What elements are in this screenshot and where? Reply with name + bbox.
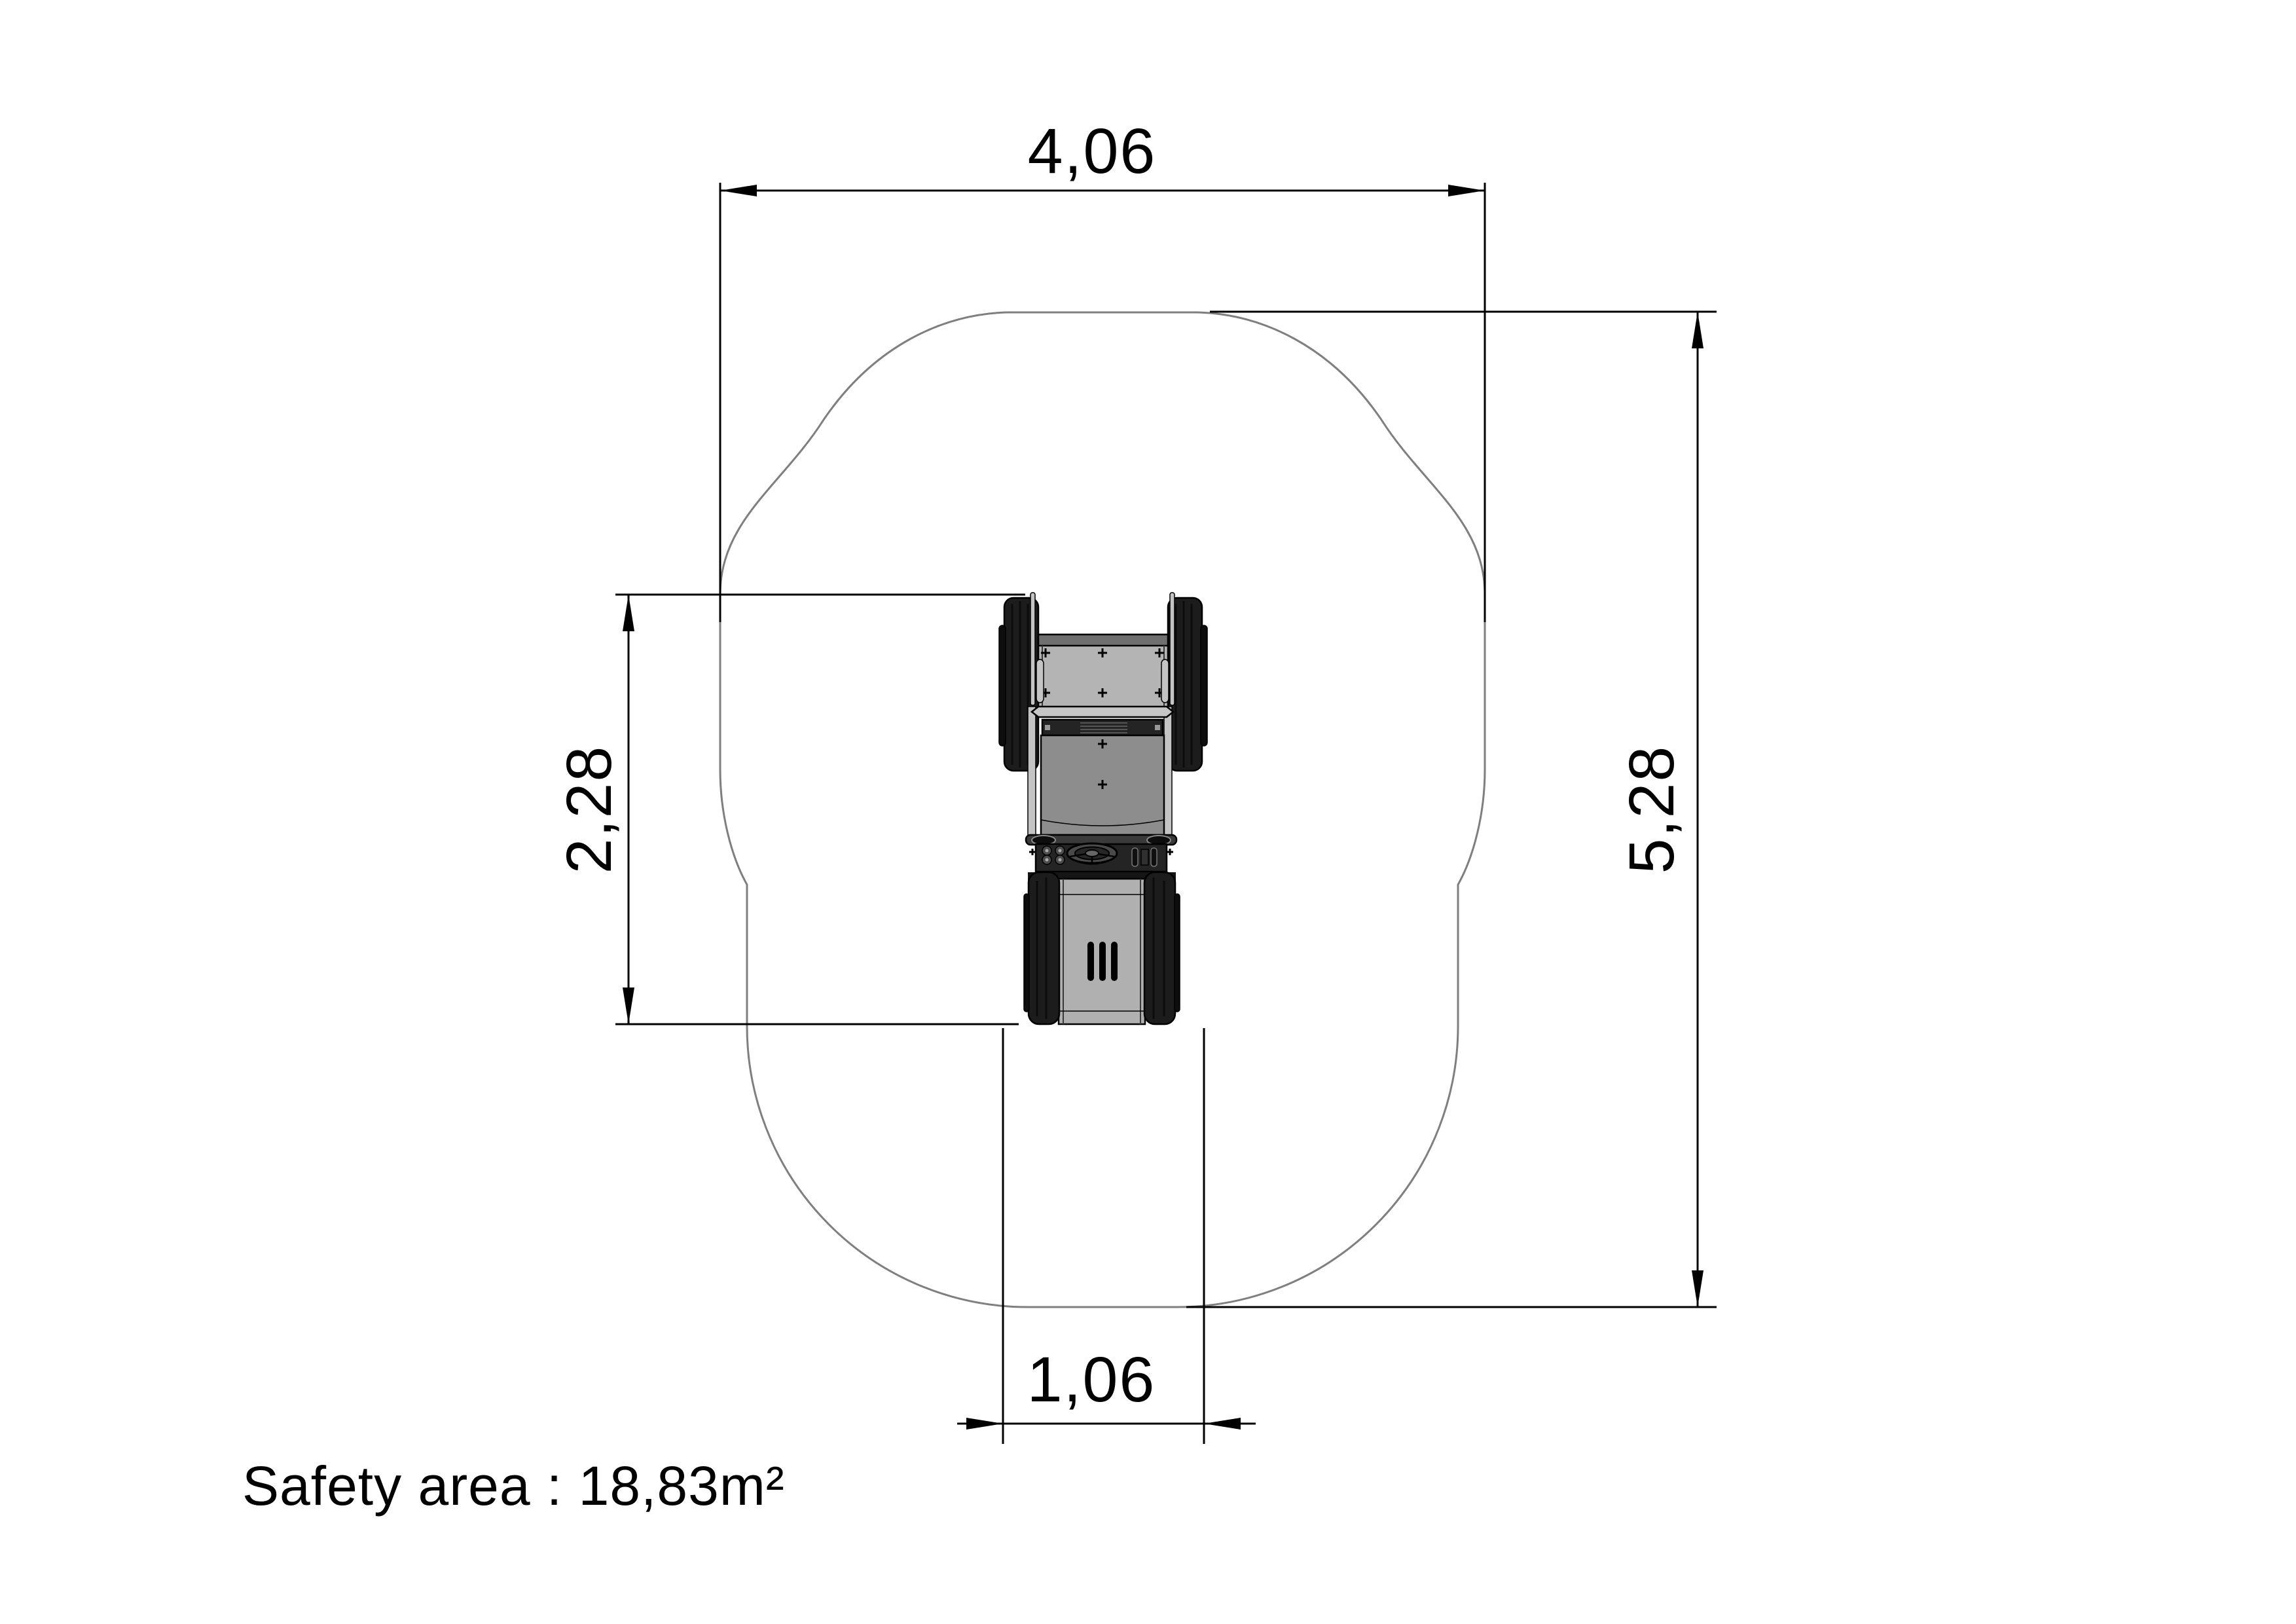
dimension-top-width: 4,06 (720, 115, 1485, 622)
machine-top-view (999, 593, 1207, 1024)
arrowhead-top (623, 595, 634, 631)
arrowhead-bottom (623, 987, 634, 1024)
dim-label-machine-width: 1,06 (1027, 1344, 1156, 1415)
rear-right-wheel (1144, 872, 1175, 1024)
arrowhead-left (720, 185, 757, 196)
rear-left-wheel (1029, 872, 1059, 1024)
drawing-sheet: 4,06 5,28 2,28 1,06 Safety area : 18,83m… (0, 0, 2296, 1624)
right-handle-rod (1170, 593, 1175, 705)
left-suspension-tab (1036, 659, 1044, 703)
rear-right-wheel-cap (1175, 894, 1180, 1012)
upper-body-plate (1038, 635, 1168, 716)
front-right-wheel-cap (1201, 625, 1207, 746)
right-frame-rail (1164, 707, 1172, 835)
crossbar (1032, 707, 1173, 717)
dimension-machine-length: 2,28 (553, 595, 1025, 1024)
dimension-machine-width: 1,06 (957, 1028, 1256, 1444)
left-frame-rail (1028, 707, 1036, 835)
arrowhead-right (1448, 185, 1485, 196)
technical-drawing-canvas: 4,06 5,28 2,28 1,06 Safety area : 18,83m… (0, 0, 2296, 1624)
safety-area-note: Safety area : 18,83m² (242, 1455, 785, 1517)
arrowhead-left (966, 1418, 1003, 1430)
right-suspension-tab (1161, 659, 1169, 703)
arrowhead-right (1204, 1418, 1241, 1430)
dim-label-top-width: 4,06 (1028, 115, 1157, 187)
vent-screw (1045, 725, 1050, 730)
lever-controls (1132, 848, 1157, 866)
dimension-overall-height: 5,28 (1186, 312, 1717, 1307)
deck-slots (1087, 942, 1118, 981)
left-handle-rod (1030, 593, 1035, 705)
dim-label-overall-height: 5,28 (1616, 745, 1687, 874)
rear-left-wheel-cap (1024, 894, 1029, 1012)
front-left-wheel-cap (999, 625, 1006, 746)
steering-wheel (1067, 843, 1117, 864)
vent-screw (1155, 725, 1160, 730)
dim-label-machine-length: 2,28 (553, 745, 625, 874)
upper-body-front-strip (1038, 635, 1168, 646)
arrowhead-top (1692, 312, 1704, 348)
arrowhead-bottom (1692, 1270, 1704, 1307)
